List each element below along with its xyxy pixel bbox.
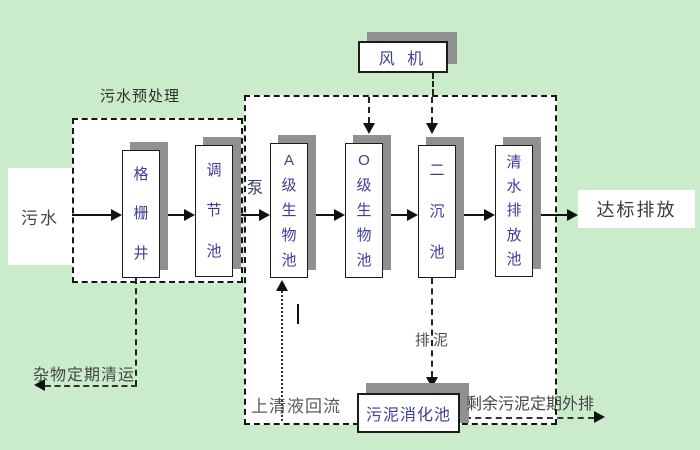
- sludge-discharge-label: 排泥: [415, 332, 451, 349]
- blower-box: 风 机: [358, 41, 448, 73]
- grid-well-tank: 格栅井: [122, 150, 160, 278]
- tick-mark: [297, 304, 299, 324]
- grid-well-label: 格栅井: [123, 151, 159, 277]
- debris-removal-label: 杂物定期清运: [33, 367, 135, 385]
- secondary-clarifier-tank: 二沉池: [418, 145, 456, 278]
- sludge-discharge-line: [431, 278, 433, 377]
- flow-line-gridwell-to-regulating: [160, 214, 184, 216]
- pump-label: 泵: [247, 180, 263, 198]
- flow-line-obio-to-clarifier: [383, 214, 407, 216]
- o-bio-tank-label: O级生物池: [346, 144, 382, 277]
- preprocess-title: 污水预处理: [100, 88, 180, 105]
- arrowhead-icon: [111, 209, 122, 221]
- o-bio-tank: O级生物池: [345, 143, 383, 278]
- influent-label: 污水: [21, 204, 59, 229]
- arrowhead-icon: [567, 209, 578, 221]
- a-bio-tank: A级生物池: [270, 143, 308, 278]
- process-flow-diagram: 污水 达标排放 格栅井 调节池 A级生物池 O级生物池 二沉池 清水排放池 风 …: [0, 0, 700, 450]
- sludge-digester-box: 污泥消化池: [357, 393, 460, 433]
- blower-label: 风 机: [379, 45, 427, 69]
- arrowhead-icon: [426, 123, 438, 134]
- arrowhead-icon: [363, 123, 375, 134]
- air-line-to-clarifier: [431, 97, 433, 123]
- arrowhead-icon: [407, 209, 418, 221]
- excess-sludge-label: 剩余污泥定期外排: [466, 396, 594, 414]
- arrowhead-icon: [594, 411, 605, 423]
- secondary-clarifier-label: 二沉池: [419, 146, 455, 277]
- clean-water-tank: 清水排放池: [495, 145, 533, 277]
- sludge-digester-label: 污泥消化池: [366, 401, 451, 425]
- a-bio-tank-label: A级生物池: [271, 144, 307, 277]
- flow-line-cleanwater-to-effluent: [533, 214, 567, 216]
- flow-line-regulating-to-abio: [233, 214, 259, 216]
- supernatant-return-label: 上清液回流: [251, 397, 341, 417]
- flow-line-abio-to-obio: [308, 214, 334, 216]
- arrowhead-icon: [276, 280, 288, 291]
- arrowhead-icon: [184, 209, 195, 221]
- effluent-box: 达标排放: [578, 190, 695, 228]
- regulating-tank: 调节池: [195, 145, 233, 277]
- debris-line-vertical: [135, 278, 137, 386]
- effluent-label: 达标排放: [597, 196, 677, 222]
- arrowhead-icon: [334, 209, 345, 221]
- excess-sludge-line: [465, 417, 594, 419]
- blower-stem-line: [432, 73, 434, 95]
- regulating-tank-label: 调节池: [196, 146, 232, 276]
- arrowhead-icon: [484, 209, 495, 221]
- clean-water-tank-label: 清水排放池: [496, 146, 532, 276]
- air-line-to-obio: [368, 97, 370, 123]
- influent-box: 污水: [8, 168, 72, 265]
- arrowhead-icon: [426, 377, 438, 388]
- flow-line-influent-to-gridwell: [72, 214, 111, 216]
- arrowhead-icon: [259, 209, 270, 221]
- flow-line-clarifier-to-cleanwater: [456, 214, 484, 216]
